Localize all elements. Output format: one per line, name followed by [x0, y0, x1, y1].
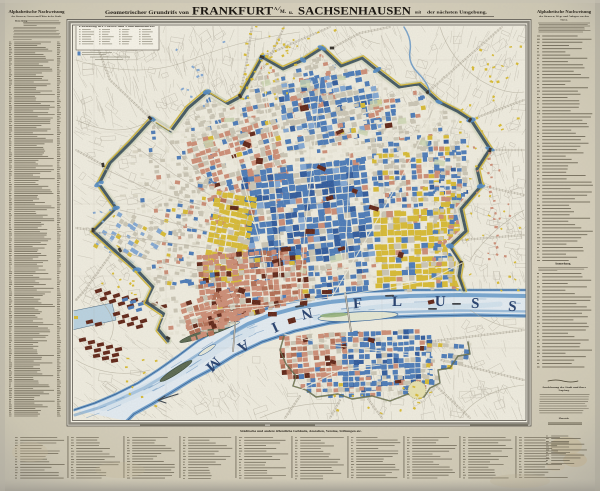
svg-text:Thoren.: Thoren. [560, 20, 568, 22]
svg-text:Maassstab.: Maassstab. [559, 418, 570, 420]
svg-text:der Strassen, Wege und Anlagen: der Strassen, Wege und Anlagen vor den [539, 15, 590, 18]
svg-text:Städtische und andere öffentli: Städtische und andere öffentliche Gebäud… [240, 430, 362, 433]
svg-text:Ausdehnung der Stadt und ihrer: Ausdehnung der Stadt und ihrer [542, 386, 586, 389]
svg-text:der nächsten Umgebung.: der nächsten Umgebung. [427, 10, 487, 15]
svg-text:Alphabetische Nachweisung: Alphabetische Nachweisung [9, 9, 65, 14]
svg-text:Geometrischer Grundrifs von: Geometrischer Grundrifs von [105, 10, 189, 16]
svg-text:mit: mit [415, 10, 422, 15]
svg-text:Anmerkung.: Anmerkung. [555, 262, 572, 266]
svg-text:SACHSENHAUSEN: SACHSENHAUSEN [298, 4, 411, 18]
svg-text:Umgebung.: Umgebung. [559, 389, 570, 392]
svg-text:der Strassen, Gassen und Plätz: der Strassen, Gassen und Plätze in der S… [12, 16, 63, 18]
svg-text:FRANKFURT: FRANKFURT [192, 4, 273, 18]
svg-text:Alphabetische Nachweisung: Alphabetische Nachweisung [537, 10, 591, 14]
svg-text:M.: M. [280, 10, 287, 15]
